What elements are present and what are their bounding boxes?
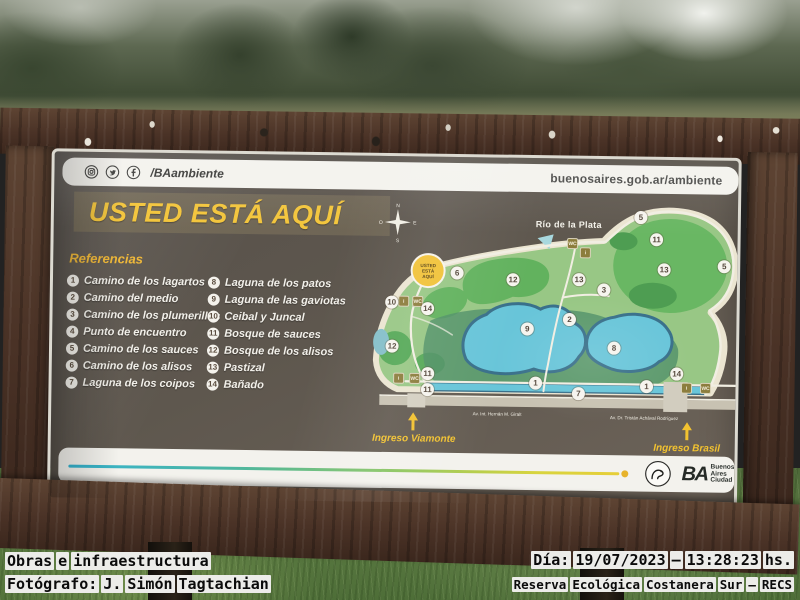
ba-logo-glyph: BA [681, 463, 707, 486]
reference-label: Laguna de las gaviotas [225, 293, 346, 307]
reference-number-badge: 1 [67, 274, 79, 286]
compass-rose: N S E O [379, 203, 418, 245]
reference-label: Camino de los alisos [83, 359, 193, 373]
reference-number-badge: 6 [66, 359, 78, 371]
reference-label: Punto de encuentro [83, 325, 186, 338]
reference-item: 14Bañado [206, 375, 344, 394]
reference-label: Laguna de los coipos [82, 376, 195, 390]
instagram-icon [84, 165, 98, 179]
poster-panel: /BAambiente buenosaires.gob.ar/ambiente … [47, 148, 742, 510]
entrance-brasil-label: Ingreso Brasil [653, 443, 720, 455]
reference-item: 5Camino de los sauces [66, 340, 220, 359]
reference-item: 2Camino del medio [67, 289, 221, 308]
you-are-here-badge: USTED ESTÁ AQUÍ [411, 254, 444, 287]
reference-label: Camino de los lagartos [84, 274, 205, 288]
ba-logo-text: Buenos Aires Ciudad [710, 465, 734, 485]
reserva-ecologica-logo [644, 460, 672, 488]
reference-number-badge: 3 [66, 308, 78, 320]
park-map: N S E O Río de la Plata USTED ESTÁ AQUÍ [367, 200, 742, 455]
reference-number-badge: 7 [65, 376, 77, 388]
reference-label: Pastizal [224, 361, 265, 374]
poster-header-bar: /BAambiente buenosaires.gob.ar/ambiente [62, 157, 738, 194]
gradient-rule [68, 464, 619, 475]
reference-number-badge: 10 [207, 310, 219, 322]
compass-o: O [379, 220, 383, 226]
reference-number-badge: 11 [207, 327, 219, 339]
photo-of-park-sign: /BAambiente buenosaires.gob.ar/ambiente … [0, 0, 800, 600]
reference-label: Camino de los plumerillos [83, 308, 220, 322]
reference-item: 8Laguna de los patos [208, 273, 346, 292]
referencias-column-2: 8Laguna de los patos9Laguna de las gavio… [206, 273, 346, 394]
gradient-dot [621, 470, 628, 477]
reference-label: Camino de los sauces [83, 342, 199, 356]
reference-label: Camino del medio [84, 291, 179, 304]
reference-item: 13Pastizal [207, 358, 345, 377]
reference-number-badge: 8 [208, 276, 220, 288]
caption-datetime: Día:19/07/2023–13:28:23hs. [530, 551, 795, 569]
reference-item: 12Bosque de los alisos [207, 341, 345, 360]
reference-item: 1Camino de los lagartos [67, 272, 221, 291]
facebook-icon [126, 165, 140, 179]
reference-item: 3Camino de los plumerillos [66, 306, 220, 325]
compass-n: N [396, 203, 400, 209]
compass-s: S [396, 238, 400, 244]
entrance-viamonte-label: Ingreso Viamonte [372, 433, 456, 445]
social-icons-row: /BAambiente [84, 165, 224, 181]
reference-label: Bosque de los alisos [224, 344, 334, 358]
title-band: USTED ESTÁ AQUÍ [74, 192, 391, 236]
reference-label: Bosque de sauces [224, 327, 321, 340]
reference-number-badge: 12 [207, 344, 219, 356]
reference-number-badge: 2 [67, 291, 79, 303]
reference-number-badge: 9 [208, 293, 220, 305]
road-label-giralt: Av. Int. Hernán M. Giralt [473, 411, 523, 417]
sign-left-post [1, 146, 54, 509]
reference-number-badge: 13 [207, 361, 219, 373]
social-handle: /BAambiente [150, 166, 224, 181]
caption-photographer: Fotógrafo:J.SimónTagtachian [4, 575, 272, 593]
reference-number-badge: 5 [66, 342, 78, 354]
reference-item: 4Punto de encuentro [66, 323, 220, 342]
reference-item: 11Bosque de sauces [207, 324, 345, 343]
sign-board: /BAambiente buenosaires.gob.ar/ambiente … [0, 104, 800, 585]
reference-item: 10Ceibal y Juncal [207, 307, 345, 326]
sign-right-post [743, 152, 798, 513]
park-map-drawing: N S E O Río de la Plata USTED ESTÁ AQUÍ [367, 200, 742, 455]
reference-label: Ceibal y Juncal [224, 310, 304, 323]
reference-number-badge: 4 [66, 325, 78, 337]
reference-number-badge: 14 [206, 378, 218, 390]
up-arrow-icon [682, 422, 692, 440]
up-arrow-icon [408, 412, 418, 430]
reference-item: 7Laguna de los coipos [65, 374, 219, 393]
referencias-column-1: 1Camino de los lagartos2Camino del medio… [65, 272, 221, 393]
entrance-apron-brasil [663, 382, 687, 412]
road-label-rodriguez: Av. Dr. Tristán Achával Rodríguez [610, 415, 679, 421]
referencias-heading: Referencias [69, 251, 143, 267]
website-url: buenosaires.gob.ar/ambiente [550, 171, 722, 187]
reference-label: Bañado [223, 378, 264, 391]
svg-text:USTED: USTED [420, 263, 436, 268]
entrance-apron-viamonte [407, 393, 425, 407]
reference-item: 6Camino de los alisos [66, 357, 220, 376]
lagoon-patos [586, 314, 672, 372]
svg-text:ESTÁ: ESTÁ [422, 267, 435, 273]
twitter-icon [105, 165, 119, 179]
reference-label: Laguna de los patos [225, 276, 332, 289]
poster-title: USTED ESTÁ AQUÍ [89, 196, 342, 231]
reference-item: 9Laguna de las gaviotas [208, 290, 346, 309]
compass-e: E [413, 220, 417, 226]
caption-location: ReservaEcológicaCostaneraSur–RECS [511, 577, 795, 592]
river-label: Río de la Plata [536, 219, 603, 230]
caption-category: Obraseinfraestructura [4, 552, 212, 570]
buenos-aires-ciudad-logo: BA Buenos Aires Ciudad [681, 463, 734, 487]
